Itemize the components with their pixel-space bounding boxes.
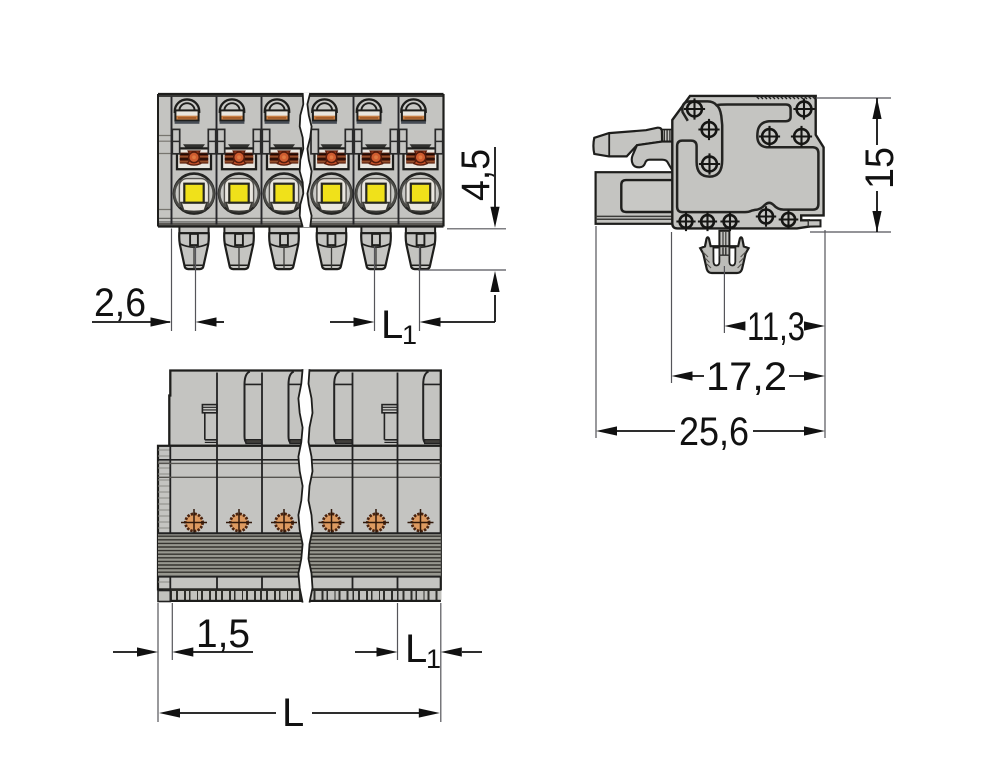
svg-text:L: L: [381, 303, 403, 347]
svg-text:L: L: [405, 627, 427, 671]
svg-text:25,6: 25,6: [679, 410, 749, 454]
svg-text:11,3: 11,3: [747, 305, 805, 349]
svg-text:L: L: [282, 691, 304, 735]
svg-text:15: 15: [858, 147, 902, 189]
svg-text:1,5: 1,5: [196, 612, 250, 656]
svg-text:17,2: 17,2: [706, 355, 787, 399]
svg-text:2,6: 2,6: [94, 281, 146, 325]
svg-text:1: 1: [402, 320, 417, 350]
svg-text:1: 1: [426, 644, 441, 674]
svg-text:4,5: 4,5: [454, 149, 498, 201]
